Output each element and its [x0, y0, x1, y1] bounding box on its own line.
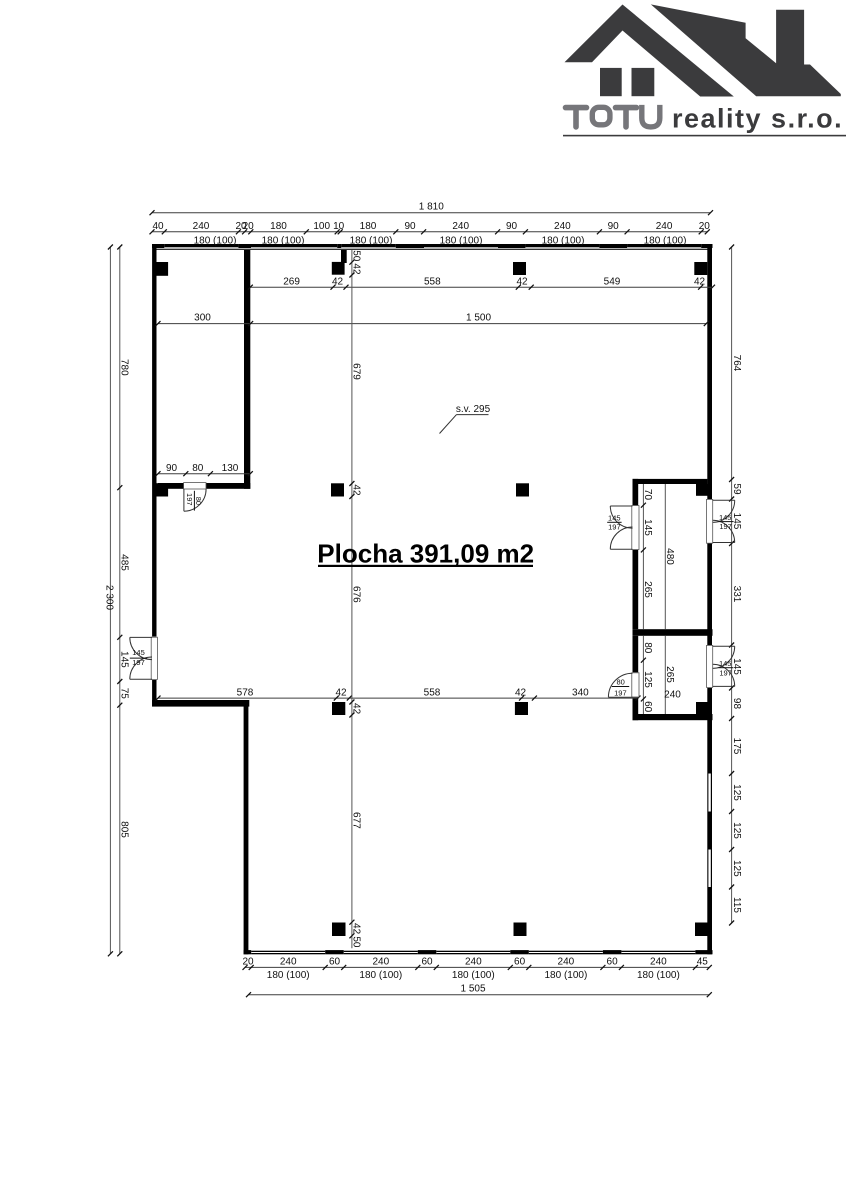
svg-text:70: 70 — [642, 489, 653, 501]
svg-text:80: 80 — [194, 497, 203, 505]
svg-text:240: 240 — [372, 957, 389, 968]
svg-text:145: 145 — [731, 658, 742, 675]
svg-text:240: 240 — [650, 957, 667, 968]
svg-text:10: 10 — [333, 221, 345, 232]
svg-text:240: 240 — [465, 957, 482, 968]
svg-text:240: 240 — [554, 221, 571, 232]
svg-text:20: 20 — [699, 221, 711, 232]
svg-text:130: 130 — [222, 463, 239, 474]
svg-text:reality s.r.o.: reality s.r.o. — [672, 104, 843, 134]
svg-text:180 (100): 180 (100) — [644, 235, 687, 246]
svg-text:197: 197 — [719, 522, 732, 531]
svg-text:240: 240 — [452, 221, 469, 232]
svg-text:1 505: 1 505 — [460, 983, 485, 994]
svg-text:780: 780 — [119, 359, 130, 376]
svg-text:90: 90 — [166, 463, 178, 474]
svg-text:180 (100): 180 (100) — [637, 970, 680, 981]
svg-text:40: 40 — [152, 221, 164, 232]
svg-text:197: 197 — [185, 493, 194, 506]
svg-text:1 500: 1 500 — [466, 313, 491, 324]
svg-text:180 (100): 180 (100) — [359, 970, 402, 981]
svg-text:197: 197 — [132, 658, 145, 667]
svg-text:180 (100): 180 (100) — [544, 970, 587, 981]
svg-text:60: 60 — [421, 957, 433, 968]
svg-text:240: 240 — [280, 957, 297, 968]
svg-text:60: 60 — [514, 957, 526, 968]
svg-text:265: 265 — [642, 581, 653, 598]
svg-text:42: 42 — [516, 276, 528, 287]
svg-text:125: 125 — [731, 822, 742, 839]
svg-text:764: 764 — [731, 355, 742, 372]
svg-text:558: 558 — [424, 687, 441, 698]
svg-text:42: 42 — [350, 484, 361, 496]
svg-text:677: 677 — [350, 812, 361, 829]
svg-text:180 (100): 180 (100) — [452, 970, 495, 981]
svg-text:558: 558 — [424, 276, 441, 287]
svg-text:180 (100): 180 (100) — [262, 235, 305, 246]
svg-text:59: 59 — [731, 483, 742, 495]
svg-text:s.v. 295: s.v. 295 — [456, 404, 491, 415]
svg-text:180 (100): 180 (100) — [194, 235, 237, 246]
svg-text:80: 80 — [192, 463, 204, 474]
svg-text:20: 20 — [243, 221, 255, 232]
svg-text:80: 80 — [642, 642, 653, 654]
svg-text:480: 480 — [664, 548, 675, 565]
svg-text:115: 115 — [731, 897, 742, 913]
svg-text:20: 20 — [242, 957, 254, 968]
svg-text:180: 180 — [360, 221, 377, 232]
svg-text:197: 197 — [719, 668, 732, 677]
svg-text:125: 125 — [731, 784, 742, 801]
svg-text:145: 145 — [132, 648, 145, 657]
svg-text:300: 300 — [194, 313, 211, 324]
svg-text:125: 125 — [731, 860, 742, 877]
svg-text:50: 50 — [350, 936, 361, 948]
svg-text:90: 90 — [506, 221, 518, 232]
svg-text:75: 75 — [119, 688, 130, 700]
svg-text:42: 42 — [350, 263, 361, 275]
svg-text:125: 125 — [642, 671, 653, 688]
svg-text:45: 45 — [697, 957, 709, 968]
svg-text:197: 197 — [608, 523, 621, 532]
svg-text:145: 145 — [719, 659, 732, 668]
svg-text:549: 549 — [604, 276, 621, 287]
svg-text:Plocha 391,09 m2: Plocha 391,09 m2 — [317, 539, 534, 569]
svg-text:145: 145 — [642, 519, 653, 536]
svg-text:90: 90 — [608, 221, 620, 232]
svg-text:50: 50 — [350, 250, 361, 262]
svg-text:60: 60 — [329, 957, 341, 968]
svg-text:265: 265 — [664, 666, 675, 683]
svg-text:180 (100): 180 (100) — [542, 235, 585, 246]
svg-text:145: 145 — [719, 513, 732, 522]
svg-text:100: 100 — [313, 221, 330, 232]
svg-text:145: 145 — [608, 513, 621, 522]
svg-text:145: 145 — [119, 651, 130, 668]
svg-text:42: 42 — [694, 276, 706, 287]
svg-text:60: 60 — [607, 957, 619, 968]
svg-text:240: 240 — [558, 957, 575, 968]
svg-text:805: 805 — [119, 821, 130, 838]
svg-text:80: 80 — [617, 677, 625, 686]
svg-text:98: 98 — [731, 698, 742, 710]
svg-text:240: 240 — [193, 221, 210, 232]
svg-text:42: 42 — [350, 703, 361, 715]
svg-text:180 (100): 180 (100) — [267, 970, 310, 981]
svg-text:240: 240 — [656, 221, 673, 232]
svg-text:60: 60 — [642, 701, 653, 713]
svg-text:578: 578 — [237, 687, 254, 698]
svg-text:485: 485 — [119, 554, 130, 571]
svg-text:180 (100): 180 (100) — [440, 235, 483, 246]
svg-text:340: 340 — [572, 687, 589, 698]
svg-text:180: 180 — [270, 221, 287, 232]
svg-text:679: 679 — [350, 363, 361, 380]
svg-text:175: 175 — [731, 738, 742, 755]
svg-text:42: 42 — [350, 923, 361, 935]
svg-text:2 300: 2 300 — [103, 585, 114, 610]
svg-text:1 810: 1 810 — [419, 202, 444, 213]
svg-text:269: 269 — [283, 276, 300, 287]
svg-text:42: 42 — [332, 276, 344, 287]
svg-text:42: 42 — [335, 687, 347, 698]
svg-text:42: 42 — [515, 687, 527, 698]
svg-text:676: 676 — [350, 586, 361, 603]
svg-text:240: 240 — [664, 690, 681, 701]
svg-text:90: 90 — [404, 221, 416, 232]
svg-text:197: 197 — [614, 689, 627, 698]
svg-text:331: 331 — [731, 586, 742, 603]
svg-text:180 (100): 180 (100) — [350, 235, 393, 246]
